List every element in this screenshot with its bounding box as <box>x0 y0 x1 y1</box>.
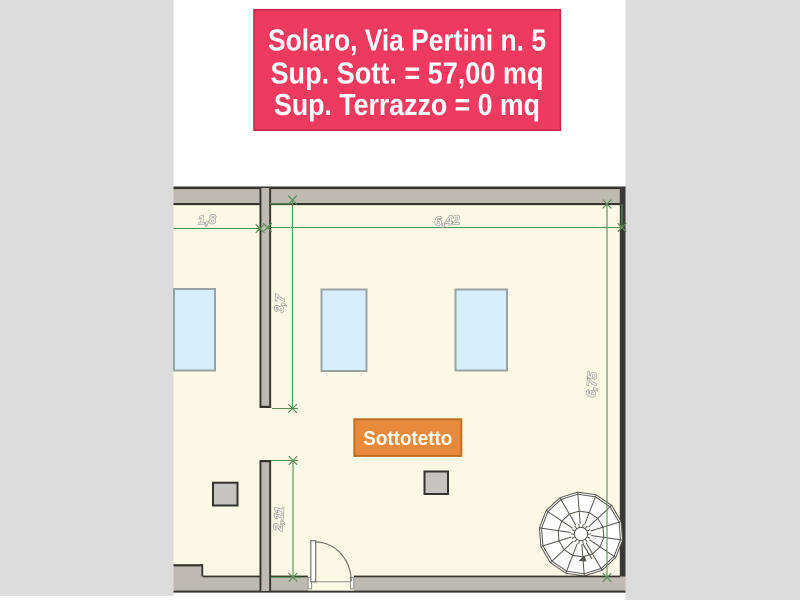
svg-text:Solaro, Via Pertini n. 5: Solaro, Via Pertini n. 5 <box>268 23 546 57</box>
svg-text:3,7: 3,7 <box>271 293 287 313</box>
svg-text:2,11: 2,11 <box>270 506 287 532</box>
svg-text:6,75: 6,75 <box>583 371 600 398</box>
svg-text:Sottotetto: Sottotetto <box>363 427 452 450</box>
svg-text:1,8: 1,8 <box>197 211 217 227</box>
svg-text:Sup. Terrazzo = 0 mq: Sup. Terrazzo = 0 mq <box>274 88 540 122</box>
svg-text:6,42: 6,42 <box>434 212 461 229</box>
svg-text:Sup. Sott. = 57,00 mq: Sup. Sott. = 57,00 mq <box>271 57 544 91</box>
